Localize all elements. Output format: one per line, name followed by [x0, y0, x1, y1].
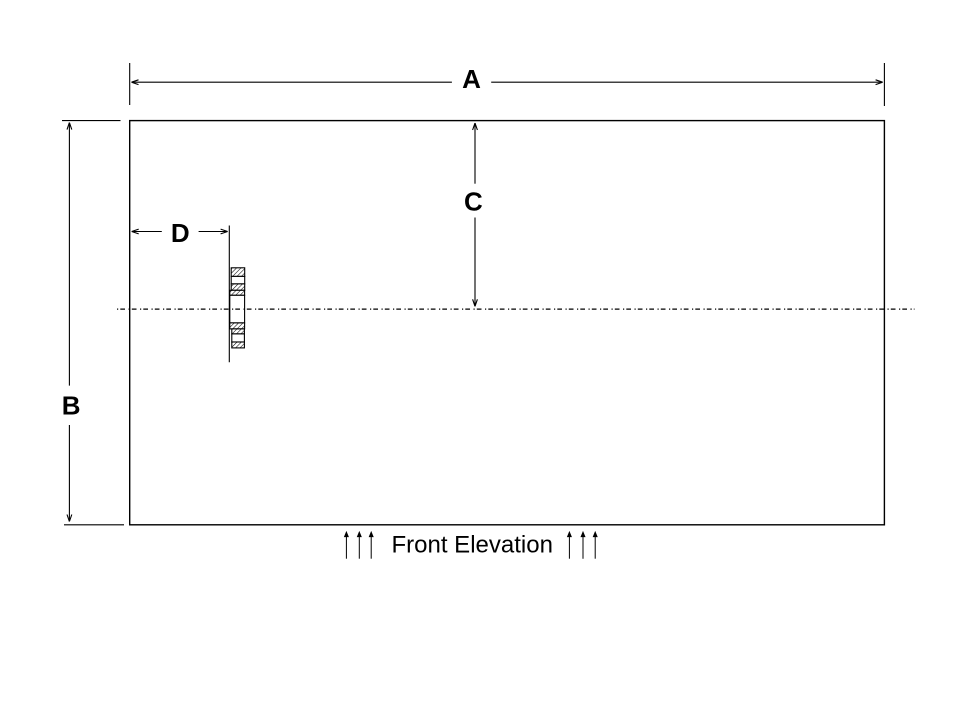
svg-text:A: A	[462, 64, 481, 94]
svg-text:Front Elevation: Front Elevation	[392, 532, 553, 559]
svg-text:D: D	[171, 218, 190, 248]
svg-text:C: C	[464, 187, 483, 217]
svg-text:B: B	[62, 391, 81, 421]
